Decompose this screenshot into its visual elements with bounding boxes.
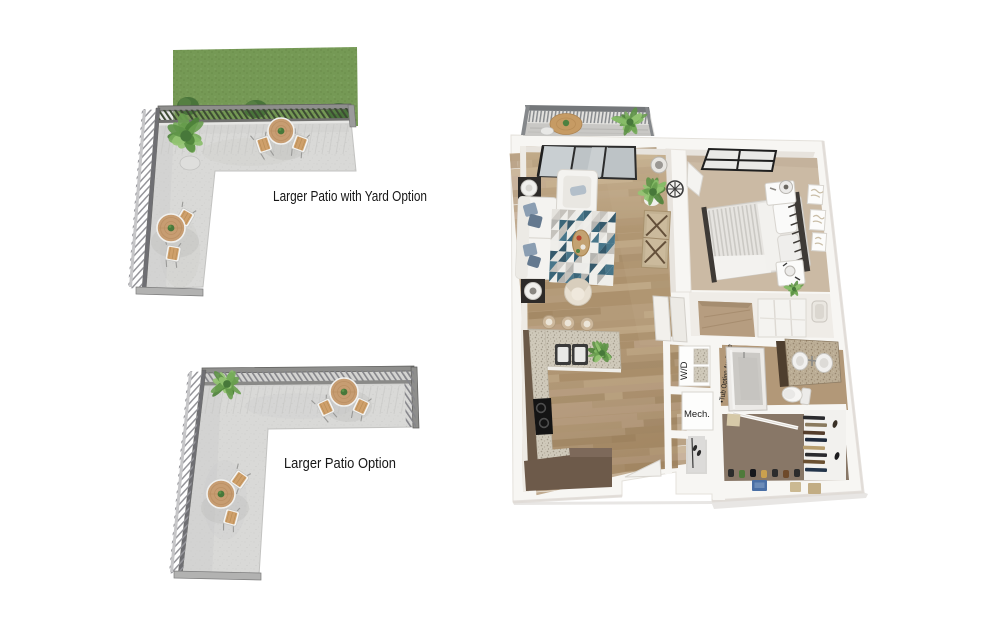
svg-text:Larger Patio Option: Larger Patio Option <box>284 456 396 472</box>
svg-text:Mech.: Mech. <box>684 409 710 420</box>
svg-text:W/D: W/D <box>679 361 690 380</box>
svg-text:Larger Patio with Yard Option: Larger Patio with Yard Option <box>273 189 427 205</box>
